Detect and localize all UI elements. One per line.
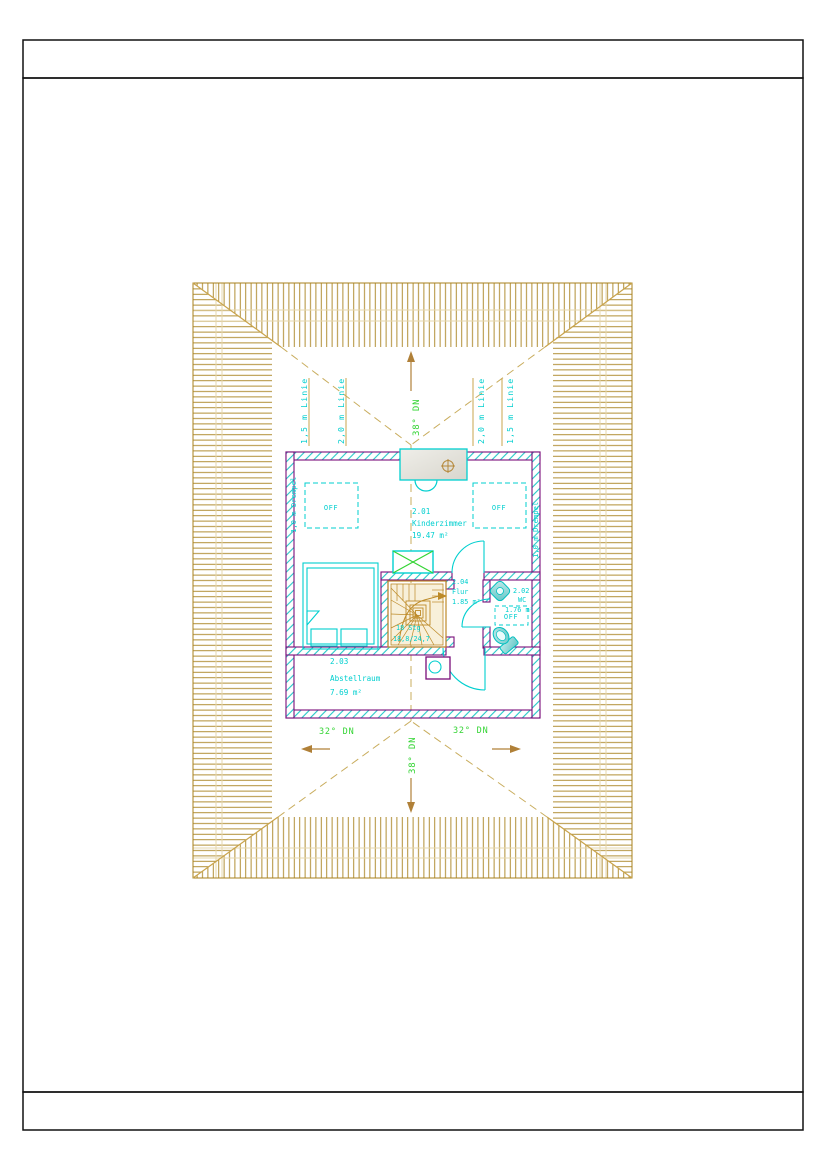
- skylight-label-left: OFF: [324, 504, 338, 512]
- room-204-name: Flur: [452, 588, 468, 596]
- room-204-area: 1.85 m²: [452, 598, 481, 606]
- vent-shaft-box: [426, 657, 450, 679]
- room-203-area: 7.69 m²: [330, 688, 362, 697]
- stair: 18 Stg 18,8/24,7: [388, 581, 447, 647]
- roof-slope-left: [193, 283, 272, 878]
- wall-exterior-right: [532, 452, 540, 718]
- wall-stair-right-lower: [446, 637, 454, 647]
- roof-pitch-label-top: 38° DN: [412, 399, 422, 436]
- room-202-area: 1.76 m²: [505, 606, 534, 614]
- knee-wall-label-left: 1,0 m Drempel: [289, 477, 298, 533]
- roof-pitch-label-bottom: 38° DN: [408, 737, 418, 774]
- skylight-label-right: OFF: [492, 504, 506, 512]
- stair-rise-run-label: 18,8/24,7: [393, 635, 430, 643]
- roof-pitch-label-left: 32° DN: [319, 727, 355, 737]
- vent-half-circle: [415, 480, 437, 491]
- blanket-fold: [307, 611, 319, 625]
- roof-slope-right: [553, 283, 632, 878]
- bed: [303, 563, 378, 649]
- door-kinderzimmer: [452, 541, 484, 573]
- room-201-name: Kinderzimmer: [412, 519, 467, 528]
- wall-kinderzimmer-wc: [484, 572, 540, 580]
- drawing-sheet: 38° DN 38° DN 32° DN 32° DN 1,5 m Linie …: [0, 0, 826, 1169]
- wc-room: OFF 2.02 WC 1.76 m²: [488, 580, 533, 655]
- room-202-number: 2.02: [513, 587, 529, 595]
- room-204-number: 2.04: [452, 578, 468, 586]
- height-line-label-right-outer: 1,5 m Linie: [505, 378, 515, 444]
- room-203-name: Abstellraum: [330, 674, 381, 683]
- wall-flur-wc-lower: [483, 627, 490, 648]
- roof-hatch-block: [400, 449, 467, 491]
- room-201-area: 19.47 m²: [412, 531, 449, 540]
- room-203-number: 2.03: [330, 657, 348, 666]
- room-202-name: WC: [518, 596, 526, 604]
- height-line-label-left-inner: 2,0 m Linie: [336, 378, 346, 444]
- chimney: [393, 551, 433, 573]
- wall-stair-left: [381, 580, 388, 647]
- skylight-label-wc: OFF: [504, 613, 518, 621]
- height-line-label-left-outer: 1,5 m Linie: [299, 378, 309, 444]
- wall-abstellraum-top-left: [286, 647, 446, 655]
- room-201-number: 2.01: [412, 507, 431, 516]
- height-line-label-right-inner: 2,0 m Linie: [476, 378, 486, 444]
- knee-wall-label-right: 1,0 m Drempel: [531, 502, 540, 558]
- wall-exterior-bottom: [286, 710, 540, 718]
- title-strip-top: [23, 40, 803, 78]
- title-strip-bottom: [23, 1092, 803, 1130]
- roof-pitch-label-right: 32° DN: [453, 726, 489, 736]
- floor-plan: OFF OFF 2.01 Kinderzimmer 19.47 m² 1,0 m…: [286, 449, 540, 718]
- stair-risers-label: 18 Stg: [396, 624, 421, 632]
- wc-basin: [489, 580, 512, 603]
